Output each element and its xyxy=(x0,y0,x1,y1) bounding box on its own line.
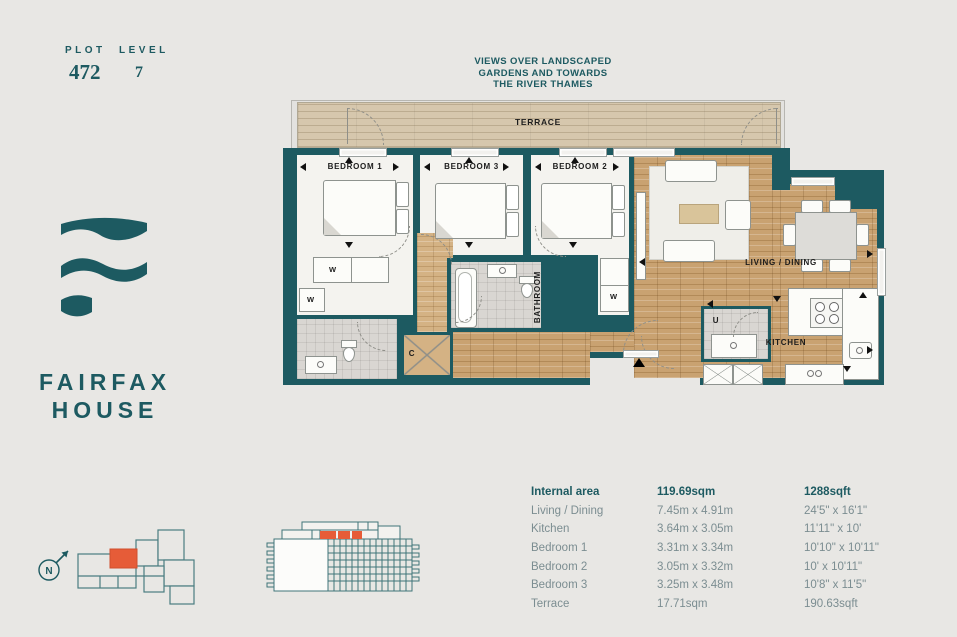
window-kitchen xyxy=(877,248,886,296)
label-utility: U xyxy=(709,316,723,325)
row-metric: 3.05m x 3.32m xyxy=(657,561,804,573)
level-label: LEVEL xyxy=(119,45,169,56)
kitchen-sink-drain xyxy=(856,347,863,354)
floorplan-page: { "header": { "plot_label": "PLOT", "plo… xyxy=(0,0,957,637)
views-note-line3: THE RIVER THAMES xyxy=(433,79,653,91)
row-name: Terrace xyxy=(531,598,657,610)
areas-row-kitchen: Kitchen 3.64m x 3.05m 11'11" x 10' xyxy=(531,520,906,539)
kitchen-bowl-1 xyxy=(807,370,814,377)
dim-arrow xyxy=(859,292,867,298)
views-note-line1: VIEWS OVER LANDSCAPED xyxy=(433,56,653,68)
label-living-dining: LIVING / DINING xyxy=(711,258,851,267)
row-imperial: 11'11" x 10' xyxy=(804,523,906,535)
plot-label: PLOT xyxy=(65,45,106,56)
views-note: VIEWS OVER LANDSCAPED GARDENS AND TOWARD… xyxy=(433,56,653,91)
window-bedroom3 xyxy=(451,148,499,157)
label-kitchen: KITCHEN xyxy=(731,338,841,347)
row-metric: 3.25m x 3.48m xyxy=(657,579,804,591)
dim-arrow xyxy=(867,250,873,258)
areas-header-imperial: 1288sqft xyxy=(804,486,906,498)
areas-row-living: Living / Dining 7.45m x 4.91m 24'5" x 16… xyxy=(531,502,906,521)
media-unit xyxy=(636,192,646,280)
wardrobe-bedroom2 xyxy=(600,258,629,312)
row-imperial: 190.63sqft xyxy=(804,598,906,610)
row-imperial: 10'8" x 11'5" xyxy=(804,579,906,591)
dim-arrow xyxy=(843,366,851,372)
window-living xyxy=(613,148,675,157)
row-name: Bedroom 3 xyxy=(531,579,657,591)
dining-chair-1 xyxy=(801,200,823,213)
bathroom-sink-drain xyxy=(499,267,506,274)
fairfax-house-logo-waves xyxy=(60,214,148,320)
dim-arrow xyxy=(639,258,645,266)
brand-name: FAIRFAX HOUSE xyxy=(30,368,180,424)
dim-arrow xyxy=(345,242,353,248)
window-bedroom1 xyxy=(339,148,387,157)
row-imperial: 10' x 10'11" xyxy=(804,561,906,573)
label-cupboard: C xyxy=(405,349,419,358)
dim-arrow xyxy=(569,242,577,248)
level-value: 7 xyxy=(135,64,143,82)
window-dining xyxy=(791,177,835,186)
row-name: Bedroom 2 xyxy=(531,561,657,573)
armchair xyxy=(725,200,751,230)
kitchen-tall-unit-1 xyxy=(703,364,733,385)
compass-north-letter: N xyxy=(45,566,52,577)
wall-corner-terrace xyxy=(772,148,790,190)
entry-arrow xyxy=(633,358,645,367)
row-imperial: 10'10" x 10'11" xyxy=(804,542,906,554)
areas-table: Internal area 119.69sqm 1288sqft Living … xyxy=(531,483,906,613)
bed-bedroom3 xyxy=(435,183,519,239)
areas-header-name: Internal area xyxy=(531,486,657,498)
dim-arrow xyxy=(707,300,713,308)
dim-arrow xyxy=(773,296,781,302)
wardrobe-bedroom1-label: W xyxy=(329,265,336,274)
dining-chair-5 xyxy=(783,224,796,246)
areas-row-terrace: Terrace 17.71sqm 190.63sqft xyxy=(531,595,906,614)
label-bedroom1: BEDROOM 1 xyxy=(297,162,413,171)
areas-row-bedroom1: Bedroom 1 3.31m x 3.34m 10'10" x 10'11" xyxy=(531,539,906,558)
views-note-line2: GARDENS AND TOWARDS xyxy=(433,68,653,80)
brand-line2: HOUSE xyxy=(30,396,180,424)
sofa-top xyxy=(665,160,717,182)
coffee-table xyxy=(679,204,719,224)
label-bedroom2: BEDROOM 2 xyxy=(531,162,629,171)
row-name: Bedroom 1 xyxy=(531,542,657,554)
sofa-bottom xyxy=(663,240,715,262)
wardrobe-bedroom2-label: W xyxy=(610,292,617,301)
row-metric: 3.31m x 3.34m xyxy=(657,542,804,554)
row-imperial: 24'5" x 16'1" xyxy=(804,505,906,517)
row-metric: 7.45m x 4.91m xyxy=(657,505,804,517)
row-metric: 17.71sqm xyxy=(657,598,804,610)
areas-header-metric: 119.69sqm xyxy=(657,486,804,498)
entry-door-gap xyxy=(623,350,659,358)
terrace-door-leaf-right xyxy=(776,108,777,144)
elevation-key xyxy=(258,505,436,609)
dim-arrow xyxy=(465,242,473,248)
terrace-door-leaf-left xyxy=(347,108,348,144)
dim-arrow xyxy=(867,346,873,354)
areas-row-bedroom2: Bedroom 2 3.05m x 3.32m 10' x 10'11" xyxy=(531,557,906,576)
label-bathroom: BATHROOM xyxy=(533,266,542,328)
plot-value: 472 xyxy=(69,60,101,85)
row-name: Living / Dining xyxy=(531,505,657,517)
brand-line1: FAIRFAX xyxy=(30,368,180,396)
areas-header-row: Internal area 119.69sqm 1288sqft xyxy=(531,483,906,502)
label-bedroom3: BEDROOM 3 xyxy=(420,162,523,171)
areas-row-bedroom3: Bedroom 3 3.25m x 3.48m 10'8" x 11'5" xyxy=(531,576,906,595)
wardrobe-hall-label: W xyxy=(307,295,314,304)
kitchen-tall-unit-2 xyxy=(733,364,763,385)
kitchen-bowl-2 xyxy=(815,370,822,377)
dining-chair-2 xyxy=(829,200,851,213)
dining-chair-6 xyxy=(856,224,869,246)
row-name: Kitchen xyxy=(531,523,657,535)
key-plan xyxy=(72,518,202,610)
wardrobe-bedroom1 xyxy=(313,257,389,283)
floor-plan: TERRACE BATHROOM xyxy=(283,100,884,390)
window-bedroom2 xyxy=(559,148,607,157)
row-metric: 3.64m x 3.05m xyxy=(657,523,804,535)
ensuite-sink-drain xyxy=(317,361,324,368)
dining-table xyxy=(795,212,857,260)
